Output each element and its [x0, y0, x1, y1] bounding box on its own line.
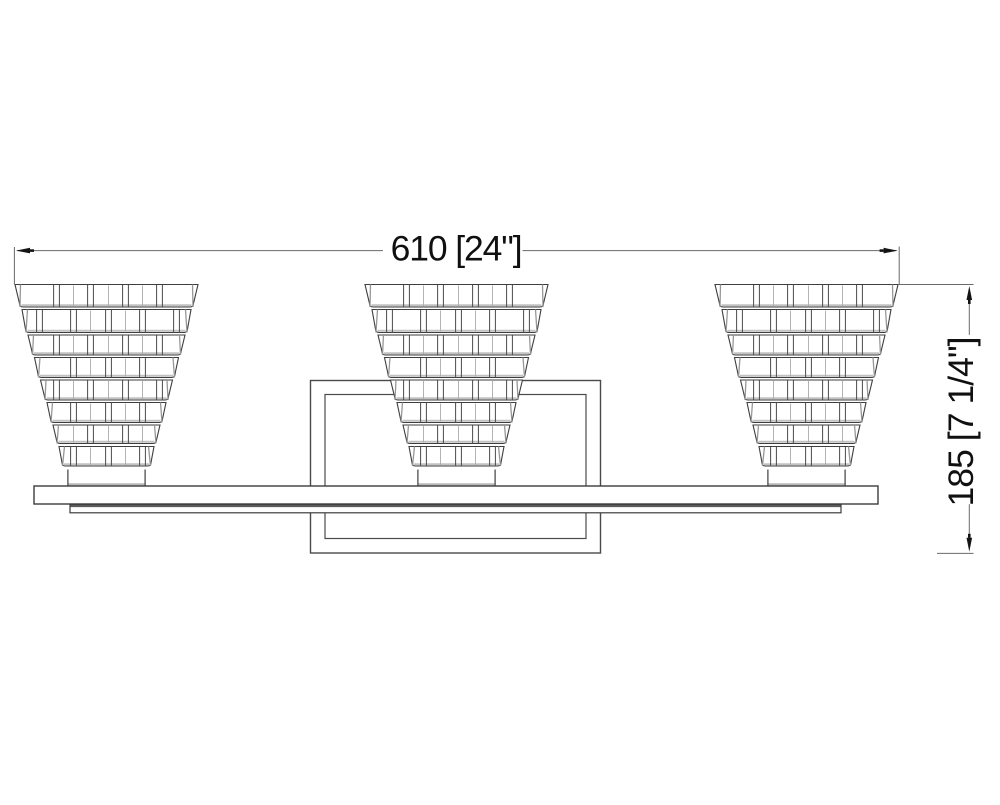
svg-text:610 [24"]: 610 [24"] [391, 228, 523, 268]
svg-text:185 [7 1/4"]: 185 [7 1/4"] [941, 337, 981, 507]
